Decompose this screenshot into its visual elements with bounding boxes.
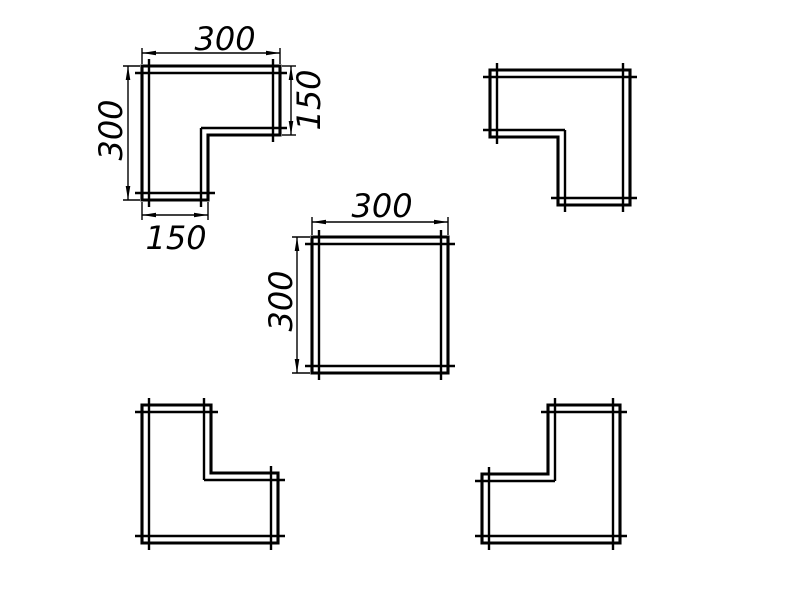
dimension-arrow [266,51,280,56]
dimension-arrow [295,237,300,251]
l-profile-notch-bottom-left [483,63,637,212]
dimension-arrow [312,220,326,225]
dimension-150: 150 [142,202,208,257]
dimension-arrow [142,51,156,56]
dimension-label: 300 [262,270,300,331]
dimension-label: 300 [92,99,130,160]
dimension-150: 150 [282,66,328,135]
dimension-300: 300 [92,66,140,200]
dimension-label: 300 [351,187,412,225]
l-profile-notch-top-right [135,398,285,550]
profile-outer-contour [490,70,630,205]
dimension-300: 300 [142,20,280,64]
technical-drawing-svg: 300300150150300300 [0,0,800,600]
dimension-arrow [126,186,131,200]
drawing-canvas: 300300150150300300 [0,0,800,600]
dimension-arrow [194,213,208,218]
profile-outer-contour [482,405,620,543]
dimension-arrow [142,213,156,218]
dimension-label: 150 [145,219,206,257]
l-profile-notch-bottom-right [135,59,287,207]
profile-outer-contour [312,237,448,373]
dimension-300: 300 [262,237,310,373]
dimension-label: 300 [194,20,255,58]
dimension-arrow [295,359,300,373]
profile-outer-contour [142,66,280,200]
dimension-arrow [126,66,131,80]
profile-outer-contour [142,405,278,543]
dimension-300: 300 [312,187,448,235]
dimension-arrow [434,220,448,225]
l-profile-notch-top-left [475,398,627,550]
dimension-label: 150 [290,69,328,130]
square-profile [305,230,455,380]
